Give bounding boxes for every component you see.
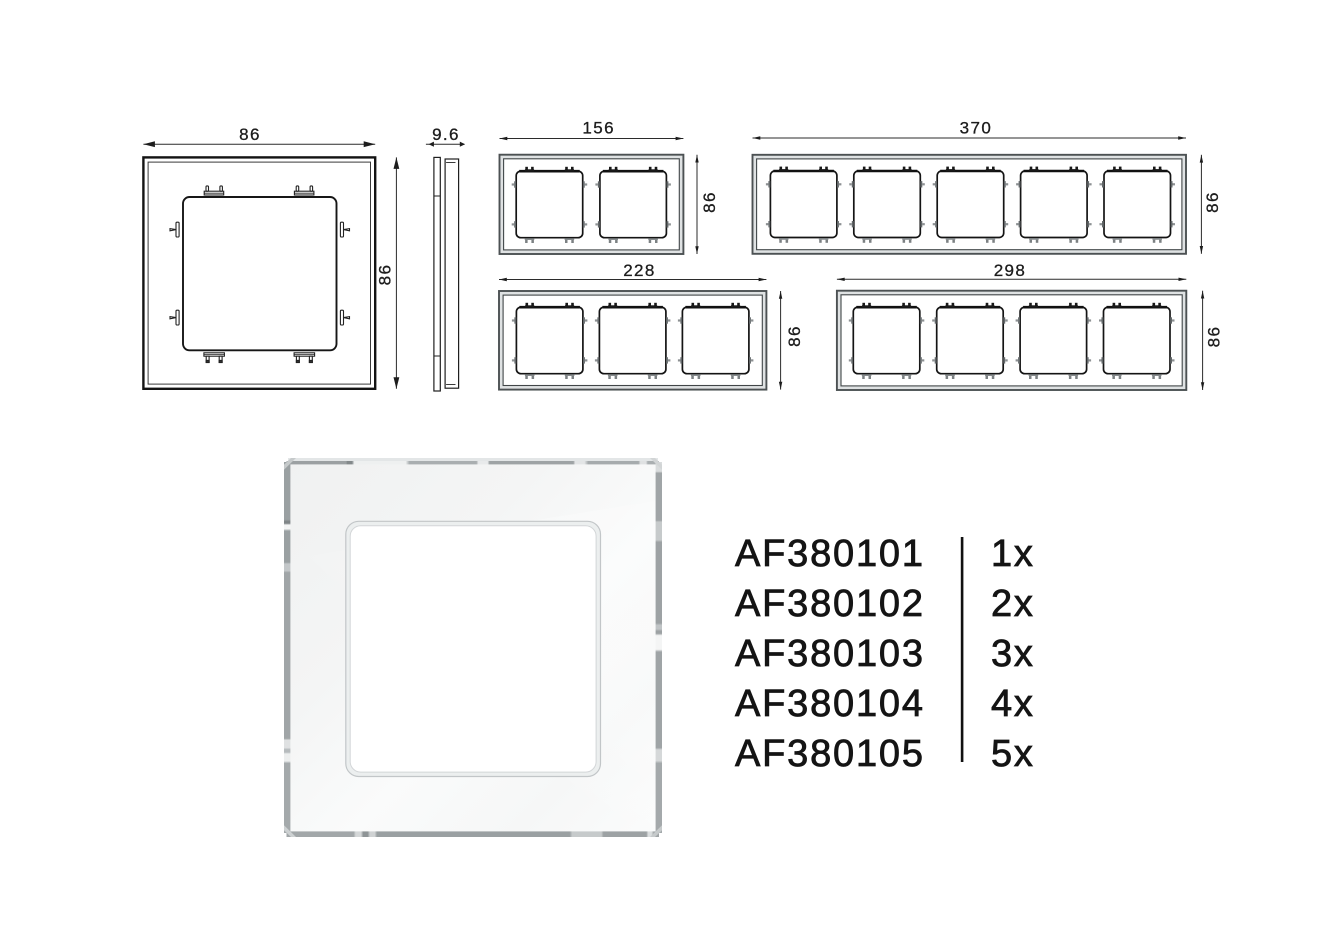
svg-text:1x: 1x [991, 533, 1035, 575]
svg-text:AF380104: AF380104 [735, 683, 925, 725]
svg-text:AF380103: AF380103 [735, 633, 925, 675]
svg-text:AF380102: AF380102 [735, 583, 925, 625]
svg-text:156: 156 [582, 118, 615, 137]
svg-text:298: 298 [994, 261, 1027, 280]
svg-text:370: 370 [960, 119, 993, 138]
svg-text:86: 86 [376, 264, 395, 286]
svg-text:86: 86 [785, 325, 804, 347]
svg-text:3x: 3x [991, 633, 1035, 675]
svg-text:2x: 2x [991, 583, 1035, 625]
svg-text:AF380101: AF380101 [735, 533, 925, 575]
svg-text:AF380105: AF380105 [735, 733, 925, 775]
svg-text:86: 86 [1205, 326, 1224, 348]
svg-text:9.6: 9.6 [432, 125, 460, 144]
svg-text:5x: 5x [991, 733, 1035, 775]
svg-text:228: 228 [623, 261, 656, 280]
svg-text:86: 86 [700, 191, 719, 213]
svg-text:4x: 4x [991, 683, 1035, 725]
svg-text:86: 86 [1203, 191, 1222, 213]
svg-text:86: 86 [239, 125, 261, 144]
